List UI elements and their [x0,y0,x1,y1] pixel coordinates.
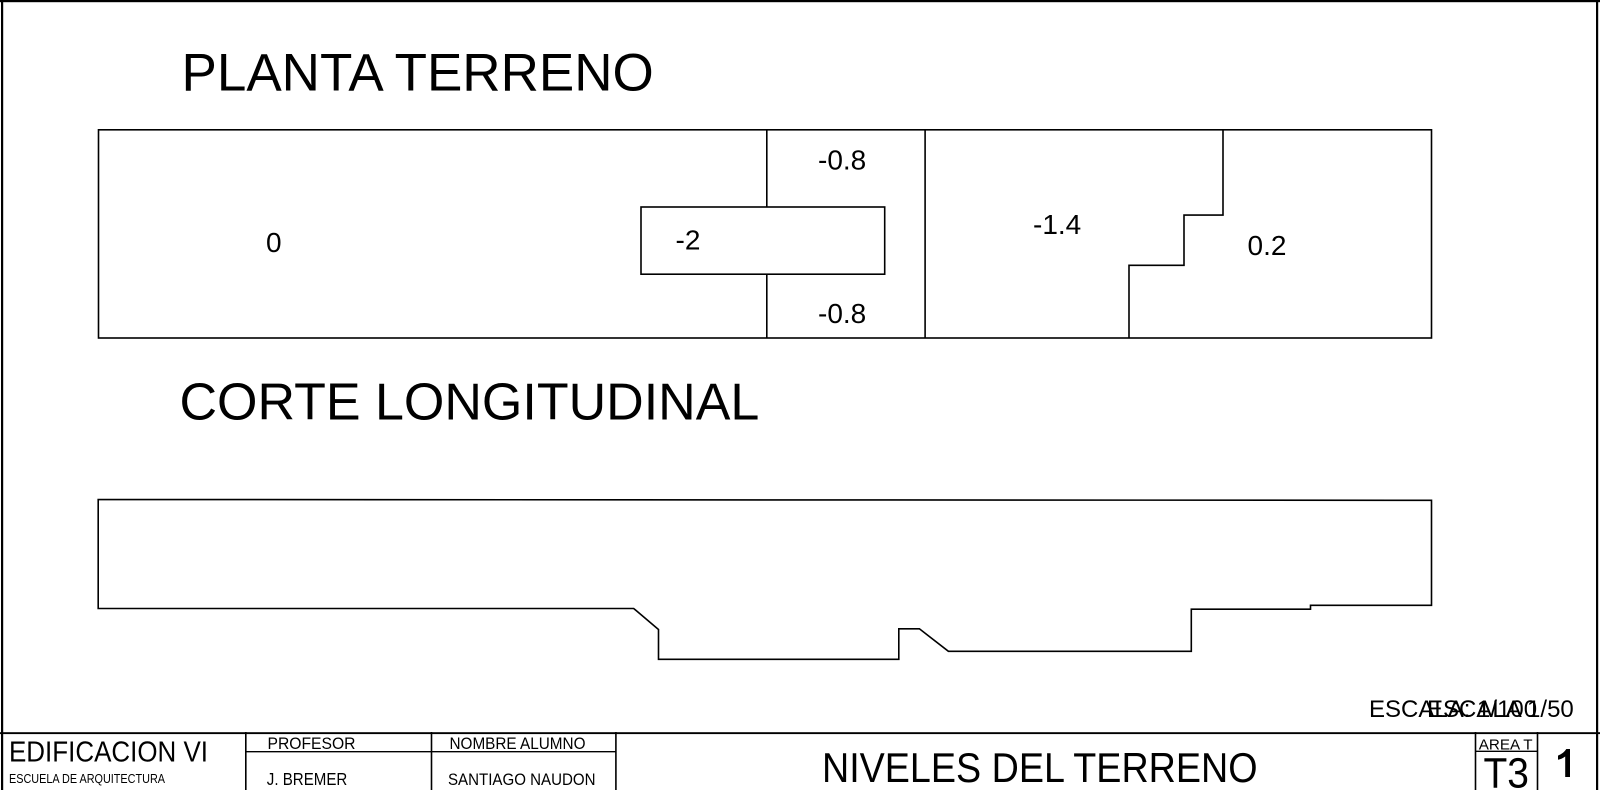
svg-text:-0.8: -0.8 [818,145,866,176]
svg-text:EDIFICACION VI: EDIFICACION VI [9,736,208,768]
svg-text:ESCUELA DE ARQUITECTURA: ESCUELA DE ARQUITECTURA [9,772,166,786]
svg-text:NOMBRE ALUMNO: NOMBRE ALUMNO [450,735,586,753]
svg-text:0.2: 0.2 [1248,230,1287,261]
svg-text:J. BREMER: J. BREMER [267,769,348,789]
svg-text:ESCALA 1/50: ESCALA 1/50 [1427,696,1574,723]
svg-text:-1.4: -1.4 [1033,209,1081,240]
svg-text:SANTIAGO NAUDON: SANTIAGO NAUDON [448,770,596,789]
svg-text:0: 0 [266,227,282,258]
svg-text:PROFESOR: PROFESOR [268,735,356,753]
svg-text:PLANTA TERRENO: PLANTA TERRENO [182,44,654,103]
svg-text:CORTE LONGITUDINAL: CORTE LONGITUDINAL [180,374,760,432]
svg-text:-0.8: -0.8 [818,298,866,329]
svg-text:T3: T3 [1484,751,1530,790]
svg-text:NIVELES DEL TERRENO: NIVELES DEL TERRENO [822,744,1258,790]
svg-text:-2: -2 [676,225,701,256]
